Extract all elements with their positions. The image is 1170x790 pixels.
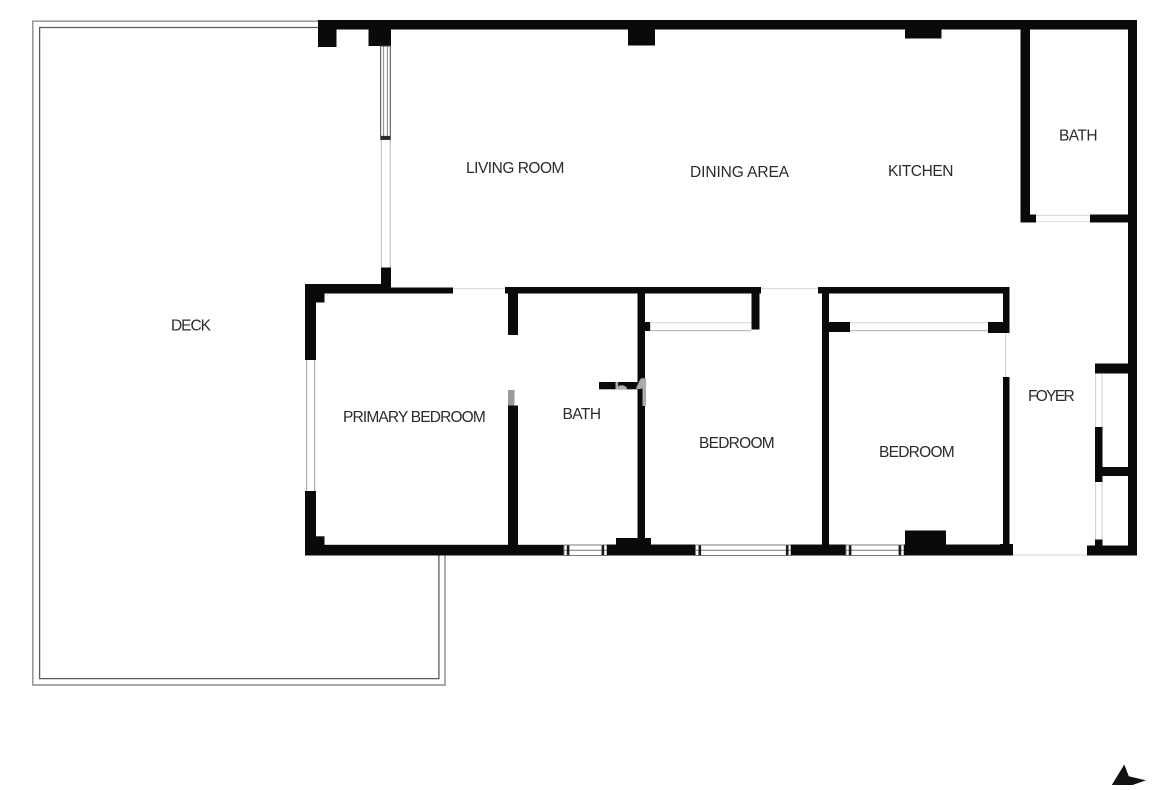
svg-text:KITCHEN: KITCHEN [888,163,953,180]
svg-text:BATH: BATH [563,406,601,423]
svg-text:DECK: DECK [171,318,212,335]
svg-text:BEDROOM: BEDROOM [699,435,774,452]
svg-text:DINING AREA: DINING AREA [690,164,790,181]
svg-text:BATH: BATH [1059,128,1097,145]
svg-text:FOYER: FOYER [1028,388,1074,405]
svg-text:LIVING ROOM: LIVING ROOM [466,160,564,177]
svg-text:BEDROOM: BEDROOM [879,444,954,461]
svg-text:PRIMARY BEDROOM: PRIMARY BEDROOM [343,409,485,426]
